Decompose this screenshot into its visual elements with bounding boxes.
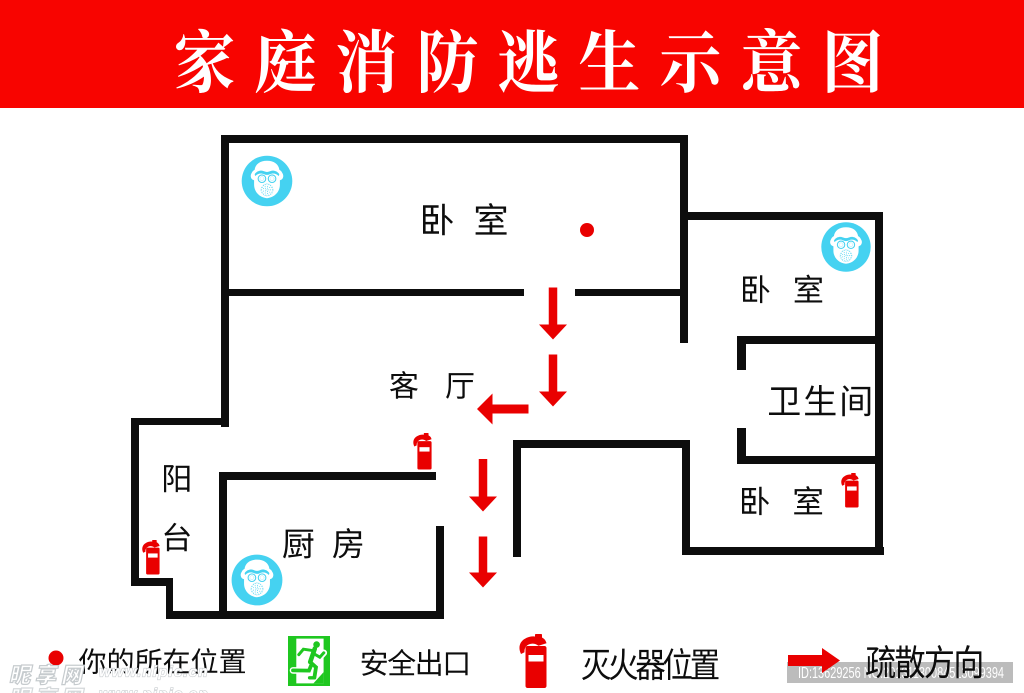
svg-text:www.nipic.cn: www.nipic.cn xyxy=(99,686,209,693)
svg-text:www.nipic.cn: www.nipic.cn xyxy=(99,664,209,681)
